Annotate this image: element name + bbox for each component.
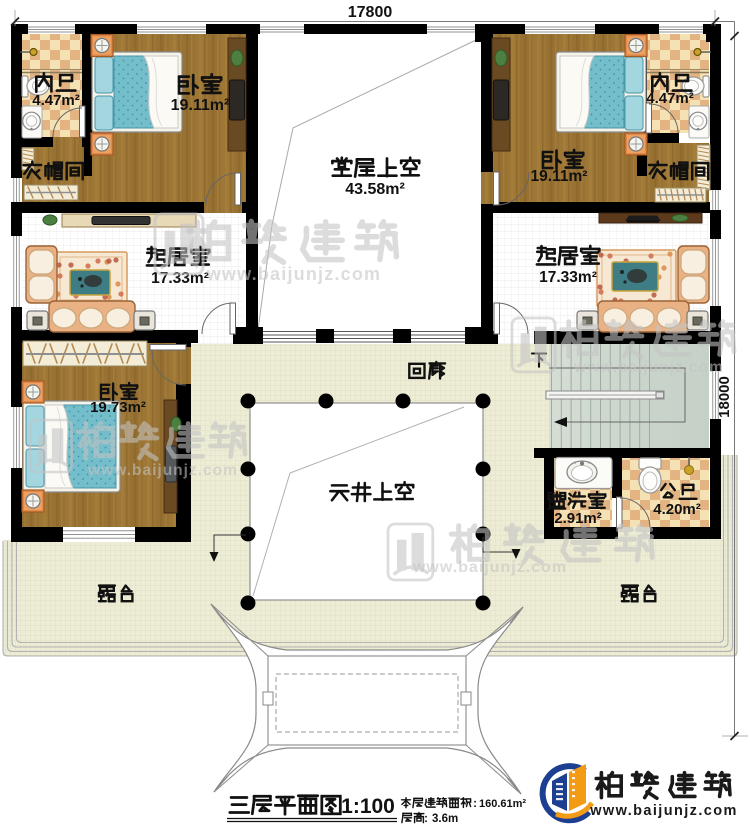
svg-text:www.baijunjz.com: www.baijunjz.com xyxy=(206,264,382,284)
svg-text:www.baijunjz.com: www.baijunjz.com xyxy=(573,359,724,376)
svg-text:4.47m²: 4.47m² xyxy=(646,90,694,107)
svg-text:4.20m²: 4.20m² xyxy=(653,501,701,518)
svg-text::: : xyxy=(424,813,428,825)
svg-text::: : xyxy=(473,798,477,810)
svg-text:17.33m²: 17.33m² xyxy=(539,269,597,286)
svg-text:2.91m²: 2.91m² xyxy=(554,510,602,527)
svg-text:17800: 17800 xyxy=(348,4,393,21)
svg-text:19.73m²: 19.73m² xyxy=(90,399,146,416)
svg-text:1:100: 1:100 xyxy=(341,795,395,818)
svg-text:19.11m²: 19.11m² xyxy=(171,97,230,114)
svg-text:www.baijunjz.com: www.baijunjz.com xyxy=(87,462,238,479)
svg-text:19.11m²: 19.11m² xyxy=(531,168,588,185)
svg-text:www.baijunjz.com: www.baijunjz.com xyxy=(412,559,567,576)
svg-text:160.61m²: 160.61m² xyxy=(479,798,526,810)
svg-text:4.47m²: 4.47m² xyxy=(32,92,80,109)
svg-text:www.baijunjz.com: www.baijunjz.com xyxy=(589,803,738,819)
svg-text:43.58m²: 43.58m² xyxy=(345,181,405,198)
svg-text:3.6m: 3.6m xyxy=(432,813,458,825)
svg-text:18000: 18000 xyxy=(716,376,733,418)
